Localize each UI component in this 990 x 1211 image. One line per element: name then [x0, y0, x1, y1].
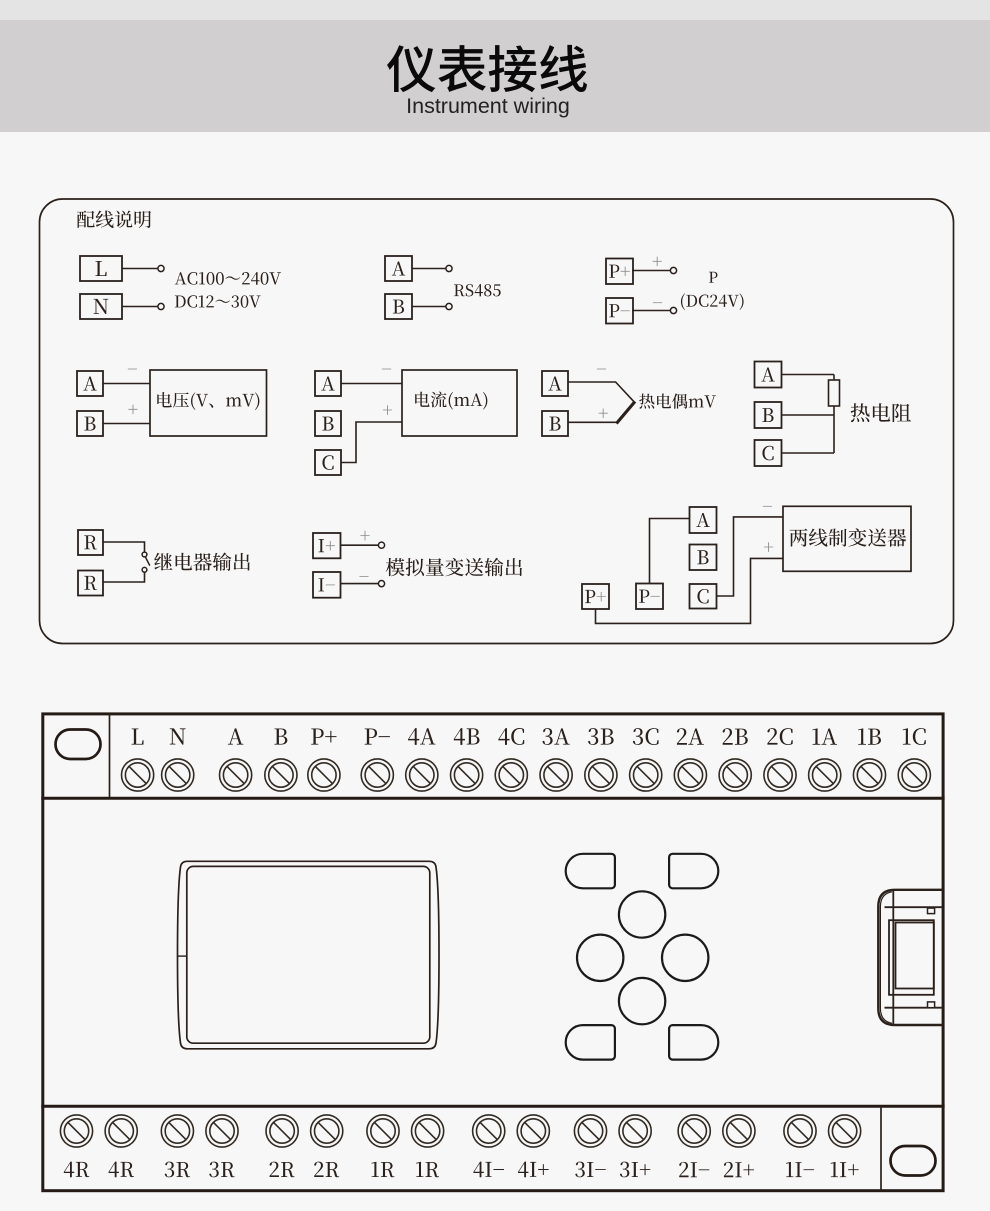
- svg-text:Instrument wiring: Instrument wiring: [406, 94, 570, 118]
